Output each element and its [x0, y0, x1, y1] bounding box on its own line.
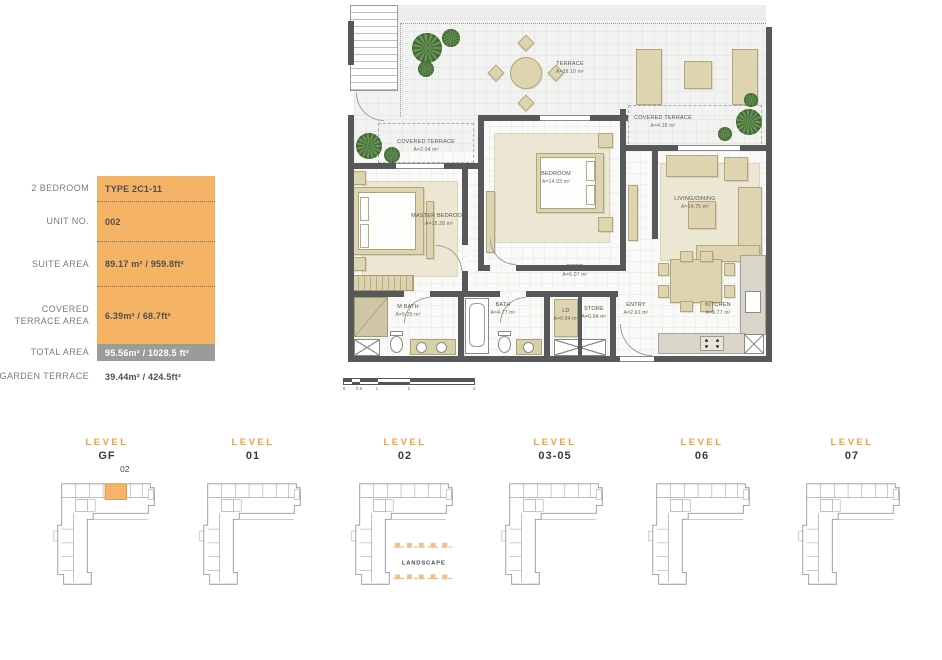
- room-label-covered-terrace-left: COVERED TERRACEA=2.04 m²: [391, 139, 461, 154]
- dining-chair: [658, 263, 669, 276]
- level-title: LEVEL: [777, 437, 927, 448]
- door-opening: [462, 245, 468, 271]
- spec-value: 002: [97, 202, 215, 242]
- wall: [620, 109, 626, 271]
- scale-tick: 0: [343, 386, 346, 391]
- entry-threshold: [620, 356, 654, 362]
- room-label-mbath: M BATHA=5.25 m²: [373, 304, 443, 319]
- terrace-boundary: [400, 23, 766, 24]
- level-number: 02: [330, 450, 480, 462]
- armchair: [724, 157, 748, 181]
- dining-chair: [724, 285, 735, 298]
- room-label-covered-terrace-right: COVERED TERRACEA=4.35 m²: [628, 115, 698, 130]
- wall: [544, 297, 550, 356]
- sink: [523, 342, 534, 353]
- pillow: [360, 224, 369, 248]
- wall: [462, 169, 468, 291]
- spec-row: SUITE AREA 89.17 m² / 959.8ft²: [12, 242, 222, 287]
- wardrobe: [352, 275, 414, 291]
- spec-row: COVERED TERRACE AREA 6.39m² / 68.7ft²: [12, 287, 222, 344]
- wall: [652, 151, 658, 239]
- wall: [348, 21, 354, 65]
- toilet: [390, 336, 403, 353]
- spec-label: TOTAL AREA: [12, 344, 97, 361]
- level-title: LEVEL: [627, 437, 777, 448]
- plant: [718, 127, 732, 141]
- sofa: [666, 155, 718, 177]
- spec-row: UNIT NO. 002: [12, 202, 222, 242]
- keyplan-03-05: [494, 472, 616, 600]
- window: [540, 115, 590, 121]
- level-title: LEVEL: [178, 437, 328, 448]
- spec-label: GARDEN TERRACE: [12, 367, 97, 387]
- door-opening: [500, 291, 526, 297]
- spec-value: 39.44m² / 424.5ft²: [97, 367, 215, 387]
- keyplan-gf: [46, 472, 168, 600]
- scale-bar: 0 0.5 1 2 4: [343, 378, 475, 392]
- level-number: 01: [178, 450, 328, 462]
- level-title: LEVEL: [480, 437, 630, 448]
- scale-tick: 2: [408, 386, 411, 391]
- level-number: GF: [32, 450, 182, 462]
- room-label-bath: BATHA=4.77 m²: [468, 302, 538, 317]
- unit-callout: 02: [120, 464, 129, 474]
- level-thumb-03-05[interactable]: LEVEL 03-05: [480, 437, 630, 605]
- plant: [412, 33, 442, 63]
- nightstand: [352, 257, 366, 271]
- plant: [736, 109, 762, 135]
- shaft: [354, 339, 380, 356]
- level-number: 07: [777, 450, 927, 462]
- room-label-master-bedroom: MASTER BEDROOMA=15.28 m²: [399, 213, 479, 228]
- room-label-corridor: CORRA=6.07 m²: [540, 264, 610, 279]
- room-label-kitchen: KITCHENA=9.77 m²: [683, 302, 753, 317]
- keyplan-02: LANDSCAPE: [344, 472, 466, 600]
- level-title: LEVEL: [32, 437, 182, 448]
- wall: [766, 27, 772, 362]
- window: [396, 163, 444, 169]
- cabinet: [628, 185, 638, 241]
- shaft: [744, 334, 764, 354]
- sink: [436, 342, 447, 353]
- keyplan-07: [791, 472, 913, 600]
- pillow: [360, 197, 369, 221]
- keyplan-01: [192, 472, 314, 600]
- lounge-sofa: [636, 49, 662, 105]
- room-label-living-dining: LIVING/DININGA=14.75 m²: [660, 196, 730, 211]
- spec-row: GARDEN TERRACE 39.44m² / 424.5ft²: [12, 367, 222, 387]
- spec-row: 2 BEDROOM TYPE 2C1-11: [12, 176, 222, 202]
- level-thumb-06[interactable]: LEVEL 06: [627, 437, 777, 605]
- room-label-bedroom: BEDROOMA=14.03 m²: [521, 171, 591, 186]
- scale-tick: 4: [473, 386, 476, 391]
- spec-value: 89.17 m² / 959.8ft²: [97, 242, 215, 287]
- plant: [442, 29, 460, 47]
- level-number: 03-05: [480, 450, 630, 462]
- nightstand: [598, 133, 613, 148]
- spec-label: UNIT NO.: [12, 202, 97, 242]
- terrace-boundary: [400, 23, 401, 117]
- spec-label: 2 BEDROOM: [12, 176, 97, 202]
- spec-value: 6.39m² / 68.7ft²: [97, 287, 215, 344]
- sink: [416, 342, 427, 353]
- spec-value-total: 95.56m² / 1028.5 ft²: [97, 344, 215, 361]
- dining-chair: [724, 263, 735, 276]
- wall: [478, 115, 484, 271]
- nightstand: [598, 217, 613, 232]
- spec-label: COVERED TERRACE AREA: [12, 287, 97, 344]
- plant: [418, 61, 434, 77]
- keyplan-06: [641, 472, 763, 600]
- unit-spec-table: 2 BEDROOM TYPE 2C1-11 UNIT NO. 002 SUITE…: [12, 176, 222, 387]
- room-label-terrace: TERRACEA=38.10 m²: [535, 61, 605, 76]
- spec-value: TYPE 2C1-11: [97, 176, 215, 202]
- dining-chair: [658, 285, 669, 298]
- scale-tick: 1: [376, 386, 379, 391]
- plant: [744, 93, 758, 107]
- door-opening: [404, 291, 430, 297]
- stairs: [350, 5, 398, 91]
- dining-table: [670, 259, 722, 303]
- wall: [348, 115, 354, 362]
- dining-chair: [700, 251, 713, 262]
- window: [678, 145, 740, 151]
- plant: [356, 133, 382, 159]
- level-thumb-07[interactable]: LEVEL 07: [777, 437, 927, 605]
- scale-tick: 0.5: [356, 386, 362, 391]
- stove: [700, 336, 724, 351]
- wall: [458, 297, 464, 356]
- level-number: 06: [627, 450, 777, 462]
- floor-plan: TERRACEA=38.10 m² COVERED TERRACEA=2.04 …: [348, 5, 772, 365]
- pillow: [586, 185, 595, 205]
- level-thumb-02[interactable]: LEVEL 02 LANDSCAPE: [330, 437, 480, 605]
- nightstand: [352, 171, 366, 185]
- door-opening: [490, 265, 516, 271]
- level-thumb-gf[interactable]: LEVEL GF 02: [32, 437, 182, 605]
- lounge-table: [684, 61, 712, 89]
- level-thumb-01[interactable]: LEVEL 01: [178, 437, 328, 605]
- spec-row: TOTAL AREA 95.56m² / 1028.5 ft²: [12, 344, 222, 361]
- bench: [426, 201, 434, 259]
- level-title: LEVEL: [330, 437, 480, 448]
- spec-label: SUITE AREA: [12, 242, 97, 287]
- dining-chair: [680, 251, 693, 262]
- scale-bar-graphic: [343, 378, 475, 385]
- highlighted-unit: [105, 484, 127, 500]
- wall: [348, 356, 772, 362]
- landscape-label: LANDSCAPE: [402, 561, 446, 567]
- room-label-entry: ENTRYA=2.61 m²: [601, 302, 671, 317]
- toilet: [498, 336, 511, 353]
